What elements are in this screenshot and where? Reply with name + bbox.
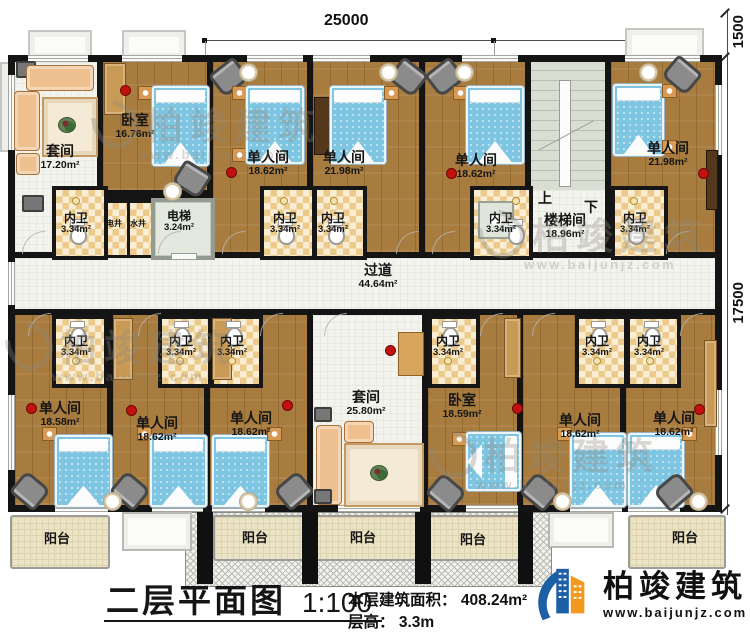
wardrobe bbox=[314, 97, 330, 155]
dimension-line-right bbox=[727, 10, 728, 515]
room-label-stairwell: 楼梯间18.96m² bbox=[544, 213, 586, 240]
wall-lamp-dot bbox=[385, 345, 396, 356]
brand-logo: 柏竣建筑 www.baijunjz.com bbox=[533, 564, 747, 626]
drawing-title: 二层平面图 1:100 bbox=[104, 584, 382, 622]
bed bbox=[152, 86, 209, 166]
wall-lamp-dot bbox=[26, 403, 37, 414]
shaft-water bbox=[127, 200, 154, 258]
wc-label: 内卫3.34m² bbox=[166, 335, 196, 359]
window bbox=[8, 395, 15, 470]
wc-label: 内卫3.34m² bbox=[318, 212, 348, 236]
column bbox=[302, 512, 318, 584]
room-label-single-n: 单人间18.62m² bbox=[653, 411, 695, 438]
window bbox=[625, 55, 700, 62]
column bbox=[197, 512, 213, 584]
bed bbox=[466, 432, 521, 491]
armchair bbox=[344, 421, 374, 443]
room-label-single-j: 单人间18.62m² bbox=[230, 411, 272, 438]
floor-lamp bbox=[380, 64, 397, 81]
room-label-single-m: 单人间18.62m² bbox=[559, 413, 601, 440]
elevator-door bbox=[171, 253, 197, 260]
room-label-single-e: 单人间18.62m² bbox=[455, 153, 497, 180]
nightstand bbox=[138, 86, 153, 100]
room-label-bedroom-top: 卧室16.76m² bbox=[115, 113, 154, 140]
floor-plan-canvas: 25000 1500 17500 bbox=[0, 0, 750, 636]
floor-drain bbox=[512, 197, 520, 205]
wc-label: 内卫3.34m² bbox=[486, 212, 516, 236]
floor-lamp bbox=[240, 493, 257, 510]
room-label-single-h: 单人间18.58m² bbox=[39, 401, 81, 428]
room-label-single-i: 单人间18.62m² bbox=[136, 416, 178, 443]
bed bbox=[570, 433, 626, 507]
wc-label: 内卫3.34m² bbox=[217, 335, 247, 359]
floor-lamp bbox=[456, 64, 473, 81]
room-label-corridor: 过道44.64m² bbox=[358, 263, 397, 290]
side-table bbox=[314, 407, 332, 422]
dimension-top-value: 25000 bbox=[324, 12, 369, 30]
window bbox=[313, 55, 370, 62]
column bbox=[415, 512, 431, 584]
wc-label: 内卫3.34m² bbox=[582, 335, 612, 359]
cabinet bbox=[704, 340, 717, 427]
balcony-label: 阳台 bbox=[44, 532, 70, 547]
wc-label: 内卫3.34m² bbox=[61, 335, 91, 359]
room-label-suite-top: 套间17.20m² bbox=[40, 144, 79, 171]
wall-lamp-dot bbox=[120, 85, 131, 96]
label-shaft-water: 水井 bbox=[130, 220, 146, 229]
dimension-extension bbox=[494, 41, 495, 56]
armchair bbox=[16, 153, 40, 175]
window bbox=[122, 55, 182, 62]
wc-label: 内卫3.34m² bbox=[433, 335, 463, 359]
plan-title-text: 二层平面图 bbox=[106, 584, 286, 617]
dimension-tick bbox=[720, 8, 730, 18]
room-label-bedroom-bottom: 卧室18.59m² bbox=[442, 393, 481, 420]
stair-down-label: 下 bbox=[584, 197, 598, 217]
dimension-extension bbox=[205, 41, 206, 56]
bed bbox=[55, 435, 112, 507]
label-shaft-electric: 电井 bbox=[106, 220, 122, 229]
balcony-label: 阳台 bbox=[672, 531, 698, 546]
room-label-single-d: 单人间21.98m² bbox=[323, 150, 365, 177]
desk bbox=[398, 332, 424, 376]
wc-label: 内卫3.34m² bbox=[270, 212, 300, 236]
dimension-right-depth: 17500 bbox=[730, 282, 747, 324]
floor-drain bbox=[630, 197, 638, 205]
closet bbox=[504, 318, 521, 378]
floor-height-line: 层高： 3.3m bbox=[348, 612, 527, 634]
floor-lamp bbox=[240, 64, 257, 81]
room-label-suite-bottom: 套间25.80m² bbox=[346, 390, 385, 417]
building-outline: 套间17.20m² 卧室16.76m² 单人间18.62m² 单人间21.98m… bbox=[8, 55, 722, 512]
stair-up-label: 上 bbox=[538, 188, 552, 208]
window bbox=[466, 505, 518, 512]
plant bbox=[58, 117, 76, 133]
balcony-label: 阳台 bbox=[460, 533, 486, 548]
nightstand bbox=[232, 86, 247, 100]
nightstand bbox=[452, 432, 467, 446]
wc-label: 内卫3.34m² bbox=[61, 212, 91, 236]
floor-drain bbox=[280, 197, 288, 205]
window bbox=[28, 55, 88, 62]
canopy bbox=[548, 512, 614, 548]
wardrobe bbox=[113, 318, 133, 380]
floor-area-line: 本层建筑面积： 408.24m² bbox=[348, 590, 527, 612]
window bbox=[715, 85, 722, 155]
bed bbox=[150, 435, 207, 507]
room-label-elevator: 电梯3.24m² bbox=[164, 210, 194, 234]
dimension-right-offset: 1500 bbox=[730, 15, 747, 48]
tv-cabinet bbox=[22, 195, 44, 212]
wall-lamp-dot bbox=[282, 400, 293, 411]
floor-drain bbox=[330, 197, 338, 205]
wc-label: 内卫3.34m² bbox=[634, 335, 664, 359]
floor-lamp bbox=[164, 183, 181, 200]
plant bbox=[370, 465, 388, 481]
floor-lamp bbox=[104, 493, 121, 510]
column bbox=[518, 512, 533, 584]
floor-lamp bbox=[640, 64, 657, 81]
sofa bbox=[14, 91, 40, 151]
floor-lamp bbox=[554, 493, 571, 510]
floor-drain bbox=[72, 197, 80, 205]
balcony-label: 阳台 bbox=[350, 531, 376, 546]
cabinet bbox=[706, 150, 718, 210]
sofa bbox=[26, 65, 94, 91]
wall-lamp-dot bbox=[512, 403, 523, 414]
brand-logo-icon bbox=[533, 564, 595, 626]
dimension-line-top bbox=[205, 40, 690, 41]
side-table bbox=[314, 489, 332, 504]
room-label-single-g: 单人间21.98m² bbox=[647, 141, 689, 168]
plan-info: 本层建筑面积： 408.24m² 层高： 3.3m bbox=[348, 590, 527, 635]
wc-label: 内卫3.34m² bbox=[620, 212, 650, 236]
room-label-single-c: 单人间18.62m² bbox=[247, 150, 289, 177]
canopy bbox=[122, 512, 192, 551]
nightstand bbox=[232, 148, 247, 162]
window bbox=[8, 262, 15, 305]
window bbox=[462, 55, 518, 62]
balcony-label: 阳台 bbox=[242, 531, 268, 546]
wall-lamp-dot bbox=[694, 404, 705, 415]
wall-lamp-dot bbox=[226, 167, 237, 178]
wall-lamp-dot bbox=[698, 168, 709, 179]
window bbox=[247, 55, 303, 62]
floor-lamp bbox=[690, 493, 707, 510]
nightstand bbox=[384, 86, 399, 100]
brand-text: 柏竣建筑 www.baijunjz.com bbox=[603, 570, 747, 619]
